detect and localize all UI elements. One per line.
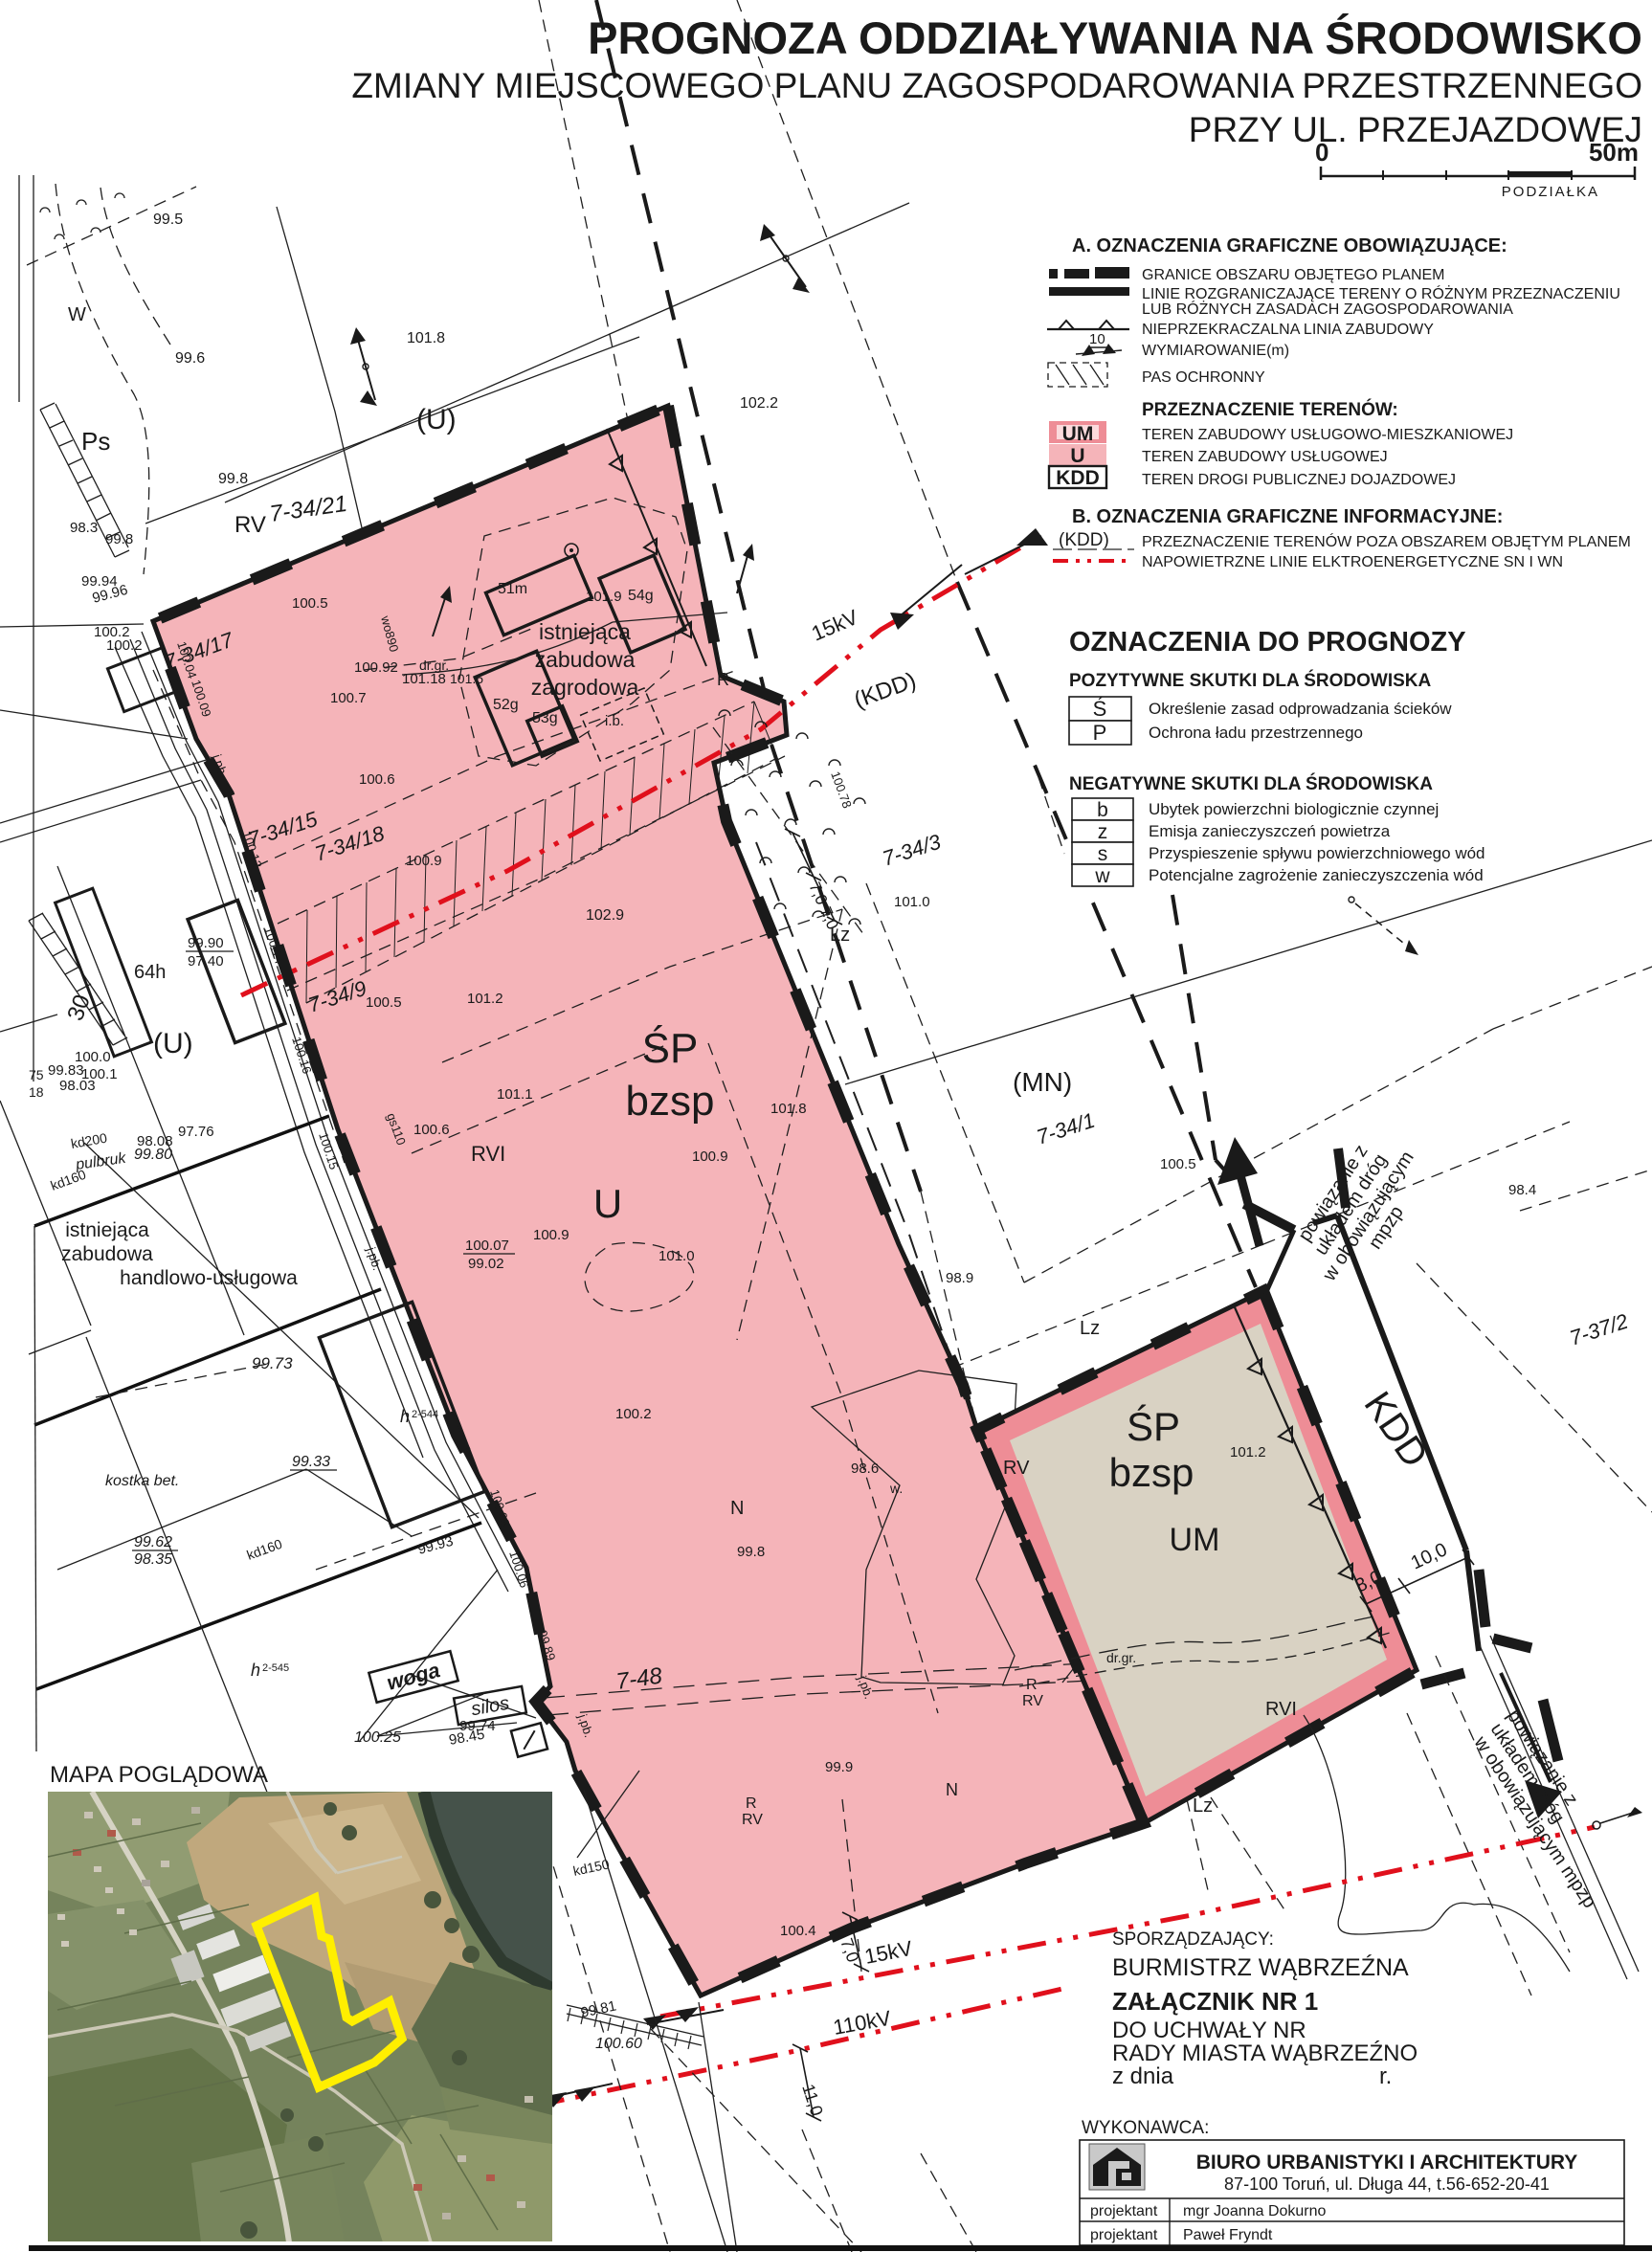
svg-text:100.9: 100.9: [406, 853, 442, 869]
svg-text:projektant: projektant: [1090, 2227, 1158, 2243]
svg-text:r.: r.: [1379, 2063, 1392, 2089]
svg-text:Ś: Ś: [1093, 697, 1107, 721]
svg-text:w: w: [1094, 865, 1110, 887]
svg-text:100.5: 100.5: [1160, 1156, 1196, 1172]
svg-text:dr.gr.: dr.gr.: [1106, 1650, 1136, 1665]
svg-text:51m: 51m: [498, 581, 527, 597]
svg-text:zabudowa: zabudowa: [535, 647, 636, 672]
svg-text:UM: UM: [1170, 1522, 1220, 1558]
svg-text:ŚP: ŚP: [1127, 1403, 1180, 1449]
svg-text:64h: 64h: [134, 962, 166, 983]
svg-text:NEGATYWNE SKUTKI DLA ŚRODOWISK: NEGATYWNE SKUTKI DLA ŚRODOWISKA: [1069, 773, 1433, 794]
svg-text:98.6: 98.6: [851, 1460, 879, 1477]
svg-text:53g: 53g: [532, 710, 558, 726]
svg-text:100.92: 100.92: [354, 659, 398, 676]
svg-text:OZNACZENIA DO PROGNOZY: OZNACZENIA DO PROGNOZY: [1069, 627, 1466, 658]
svg-text:100.1: 100.1: [81, 1066, 118, 1082]
svg-text:Ochrona ładu przestrzennego: Ochrona ładu przestrzennego: [1149, 724, 1363, 742]
svg-text:RVI: RVI: [471, 1142, 505, 1166]
svg-text:POZYTYWNE SKUTKI DLA ŚRODOWISK: POZYTYWNE SKUTKI DLA ŚRODOWISKA: [1069, 670, 1432, 691]
svg-text:RADY MIASTA WĄBRZEŹNO: RADY MIASTA WĄBRZEŹNO: [1112, 2040, 1418, 2066]
svg-text:99.33: 99.33: [292, 1454, 330, 1470]
svg-text:RV: RV: [742, 1812, 763, 1828]
svg-text:N: N: [730, 1498, 744, 1519]
svg-text:U: U: [1070, 445, 1084, 467]
svg-text:(KDD): (KDD): [1059, 530, 1109, 550]
svg-text:R: R: [1026, 1677, 1038, 1693]
svg-text:100.07: 100.07: [465, 1237, 509, 1254]
svg-text:W: W: [68, 304, 86, 325]
svg-text:100.9: 100.9: [533, 1227, 569, 1243]
svg-text:98.3: 98.3: [70, 520, 98, 536]
svg-text:PRZY UL. PRZEJAZDOWEJ: PRZY UL. PRZEJAZDOWEJ: [1189, 110, 1642, 149]
svg-text:Emisja zanieczyszczeń powietrz: Emisja zanieczyszczeń powietrza: [1149, 822, 1391, 840]
svg-text:zabudowa: zabudowa: [61, 1243, 153, 1265]
svg-text:A. OZNACZENIA GRAFICZNE OBOWIĄ: A. OZNACZENIA GRAFICZNE OBOWIĄZUJĄCE:: [1072, 235, 1507, 256]
svg-text:Ubytek powierzchni biologiczni: Ubytek powierzchni biologicznie czynnej: [1149, 800, 1439, 818]
svg-text:zagrodowa: zagrodowa: [531, 675, 639, 700]
svg-text:GRANICE OBSZARU OBJĘTEGO PLANE: GRANICE OBSZARU OBJĘTEGO PLANEM: [1142, 267, 1445, 283]
svg-text:U: U: [593, 1181, 622, 1226]
svg-text:10: 10: [1089, 331, 1105, 347]
svg-text:0: 0: [1315, 138, 1328, 167]
svg-text:2-544: 2-544: [412, 1409, 438, 1420]
svg-text:(U): (U): [416, 404, 457, 435]
svg-text:101.9: 101.9: [586, 589, 622, 605]
svg-text:101.0: 101.0: [659, 1248, 695, 1264]
svg-text:99.8: 99.8: [105, 531, 133, 547]
svg-text:100.6: 100.6: [413, 1122, 450, 1138]
svg-text:54g: 54g: [628, 588, 654, 604]
svg-text:Lz: Lz: [1080, 1318, 1100, 1339]
svg-text:i.b.: i.b.: [605, 713, 624, 729]
svg-text:Określenie zasad odprowadzania: Określenie zasad odprowadzania ścieków: [1149, 700, 1452, 718]
svg-text:h: h: [251, 1661, 260, 1680]
svg-text:100.9: 100.9: [692, 1148, 728, 1165]
svg-text:99.9: 99.9: [825, 1759, 853, 1775]
svg-text:101.18: 101.18: [402, 671, 446, 687]
svg-text:P: P: [1093, 721, 1107, 745]
svg-text:PRZEZNACZENIE TERENÓW POZA OBS: PRZEZNACZENIE TERENÓW POZA OBSZAREM OBJĘ…: [1142, 532, 1631, 550]
svg-text:100.5: 100.5: [366, 994, 402, 1011]
svg-text:102.9: 102.9: [586, 907, 624, 924]
svg-text:52g: 52g: [493, 697, 519, 713]
svg-text:Przyspieszenie spływu powierzc: Przyspieszenie spływu powierzchniowego w…: [1149, 844, 1485, 862]
svg-text:(MN): (MN): [1013, 1067, 1072, 1097]
svg-text:mgr Joanna Dokurno: mgr Joanna Dokurno: [1183, 2203, 1327, 2219]
svg-text:bzsp: bzsp: [1109, 1450, 1194, 1495]
svg-text:99.5: 99.5: [153, 212, 183, 228]
svg-text:istniejąca: istniejąca: [539, 619, 631, 644]
svg-text:z dnia: z dnia: [1112, 2063, 1174, 2089]
svg-text:99.73: 99.73: [252, 1354, 293, 1372]
svg-text:100.7: 100.7: [330, 690, 367, 706]
svg-text:b: b: [1097, 799, 1108, 821]
svg-text:102.2: 102.2: [740, 395, 778, 412]
svg-text:(U): (U): [153, 1028, 193, 1059]
svg-text:87-100 Toruń, ul. Długa 44, t.: 87-100 Toruń, ul. Długa 44, t.56-652-20-…: [1224, 2174, 1550, 2194]
svg-text:99.62: 99.62: [134, 1534, 172, 1550]
svg-text:101.8: 101.8: [407, 330, 445, 346]
svg-text:PRZEZNACZENIE TERENÓW:: PRZEZNACZENIE TERENÓW:: [1142, 399, 1398, 420]
svg-text:Lz: Lz: [1193, 1795, 1213, 1817]
svg-text:Paweł Fryndt: Paweł Fryndt: [1183, 2227, 1273, 2243]
svg-text:100.6: 100.6: [359, 771, 395, 788]
svg-text:Ps: Ps: [81, 427, 110, 456]
svg-text:101.8: 101.8: [770, 1101, 807, 1117]
svg-text:SPORZĄDZAJĄCY:: SPORZĄDZAJĄCY:: [1112, 1929, 1274, 1950]
svg-text:handlowo-usługowa: handlowo-usługowa: [120, 1267, 298, 1289]
svg-text:100.60: 100.60: [595, 2036, 642, 2052]
svg-text:97.40: 97.40: [188, 953, 224, 970]
svg-text:75: 75: [29, 1067, 44, 1082]
svg-text:99.02: 99.02: [468, 1256, 504, 1272]
svg-text:NAPOWIETRZNE LINIE ELKTROENERG: NAPOWIETRZNE LINIE ELKTROENERGETYCZNE SN…: [1142, 554, 1563, 570]
svg-text:100.25: 100.25: [354, 1729, 401, 1746]
svg-text:98.35: 98.35: [134, 1551, 172, 1568]
svg-text:WYMIAROWANIE(m): WYMIAROWANIE(m): [1142, 343, 1289, 359]
svg-text:R: R: [746, 1795, 757, 1812]
svg-text:w.: w.: [889, 1481, 903, 1496]
svg-text:99.80: 99.80: [134, 1147, 172, 1163]
svg-text:TEREN ZABUDOWY USŁUGOWO-MIESZK: TEREN ZABUDOWY USŁUGOWO-MIESZKANIOWEJ: [1142, 427, 1513, 443]
svg-text:2-545: 2-545: [262, 1662, 289, 1674]
svg-text:z: z: [1098, 821, 1108, 843]
svg-text:bzsp: bzsp: [626, 1078, 715, 1125]
svg-text:18: 18: [29, 1084, 44, 1100]
svg-text:99.8: 99.8: [737, 1544, 765, 1560]
svg-text:100.4: 100.4: [780, 1923, 816, 1939]
svg-text:MAPA POGLĄDOWA: MAPA POGLĄDOWA: [50, 1762, 268, 1788]
svg-text:Potencjalne zagrożenie zaniecz: Potencjalne zagrożenie zanieczyszczenia …: [1149, 866, 1484, 884]
svg-text:BIURO URBANISTYKI I ARCHITEKTU: BIURO URBANISTYKI I ARCHITEKTURY: [1196, 2152, 1578, 2174]
svg-text:101.1: 101.1: [497, 1086, 533, 1103]
svg-text:101.6: 101.6: [450, 671, 483, 686]
svg-text:NIEPRZEKRACZALNA LINIA ZABUDOW: NIEPRZEKRACZALNA LINIA ZABUDOWY: [1142, 322, 1434, 338]
svg-text:h: h: [400, 1407, 410, 1426]
svg-text:s: s: [1098, 843, 1108, 865]
svg-text:100.2: 100.2: [615, 1406, 652, 1422]
svg-text:istniejąca: istniejąca: [65, 1219, 149, 1241]
svg-text:R: R: [717, 670, 729, 689]
svg-text:ZMIANY MIEJSCOWEGO PLANU ZAGOS: ZMIANY MIEJSCOWEGO PLANU ZAGOSPODAROWANI…: [351, 66, 1642, 105]
svg-text:98.9: 98.9: [946, 1270, 973, 1286]
svg-text:kostka bet.: kostka bet.: [105, 1473, 179, 1489]
svg-text:100.2: 100.2: [106, 637, 143, 654]
svg-text:RVI: RVI: [1265, 1699, 1297, 1720]
svg-text:PROGNOZA ODDZIAŁYWANIA NA ŚROD: PROGNOZA ODDZIAŁYWANIA NA ŚRODOWISKO: [588, 12, 1642, 63]
svg-text:97.76: 97.76: [178, 1124, 214, 1140]
svg-text:UM: UM: [1062, 423, 1094, 445]
svg-text:PAS OCHRONNY: PAS OCHRONNY: [1142, 369, 1265, 386]
svg-text:KDD: KDD: [1056, 467, 1100, 489]
svg-text:98.4: 98.4: [1508, 1182, 1536, 1198]
svg-text:Lz: Lz: [830, 925, 850, 946]
svg-text:N: N: [946, 1780, 958, 1799]
svg-text:99.90: 99.90: [188, 935, 224, 951]
svg-text:99.8: 99.8: [218, 471, 248, 487]
svg-text:100.5: 100.5: [292, 595, 328, 612]
svg-text:projektant: projektant: [1090, 2203, 1158, 2219]
svg-text:TEREN DROGI PUBLICZNEJ DOJAZDO: TEREN DROGI PUBLICZNEJ DOJAZDOWEJ: [1142, 472, 1456, 488]
svg-text:101.0: 101.0: [894, 894, 930, 910]
svg-text:RV: RV: [234, 512, 266, 538]
svg-text:BURMISTRZ WĄBRZEŹNA: BURMISTRZ WĄBRZEŹNA: [1112, 1953, 1409, 1981]
svg-text:ŚP: ŚP: [642, 1023, 699, 1072]
svg-text:50m: 50m: [1589, 138, 1639, 167]
svg-text:RV: RV: [1022, 1693, 1043, 1709]
svg-text:WYKONAWCA:: WYKONAWCA:: [1082, 2118, 1209, 2138]
svg-text:RV: RV: [1003, 1458, 1030, 1479]
svg-text:101.2: 101.2: [467, 991, 503, 1007]
svg-text:ZAŁĄCZNIK NR 1: ZAŁĄCZNIK NR 1: [1112, 1987, 1318, 2016]
svg-text:DO UCHWAŁY NR: DO UCHWAŁY NR: [1112, 2018, 1306, 2043]
svg-text:TEREN ZABUDOWY USŁUGOWEJ: TEREN ZABUDOWY USŁUGOWEJ: [1142, 449, 1388, 465]
svg-text:100.0: 100.0: [75, 1049, 111, 1065]
svg-text:LINIE ROZGRANICZAJĄCE TERENY O: LINIE ROZGRANICZAJĄCE TERENY O RÓŻNYM PR…: [1142, 284, 1620, 302]
svg-text:99.6: 99.6: [175, 350, 205, 367]
svg-text:PODZIAŁKA: PODZIAŁKA: [1502, 184, 1599, 200]
svg-text:101.2: 101.2: [1230, 1444, 1266, 1460]
svg-text:LUB RÓŻNYCH ZASADACH ZAGOSPODA: LUB RÓŻNYCH ZASADACH ZAGOSPODAROWANIA: [1142, 300, 1513, 318]
svg-text:B. OZNACZENIA GRAFICZNE INFORM: B. OZNACZENIA GRAFICZNE INFORMACYJNE:: [1072, 506, 1503, 527]
